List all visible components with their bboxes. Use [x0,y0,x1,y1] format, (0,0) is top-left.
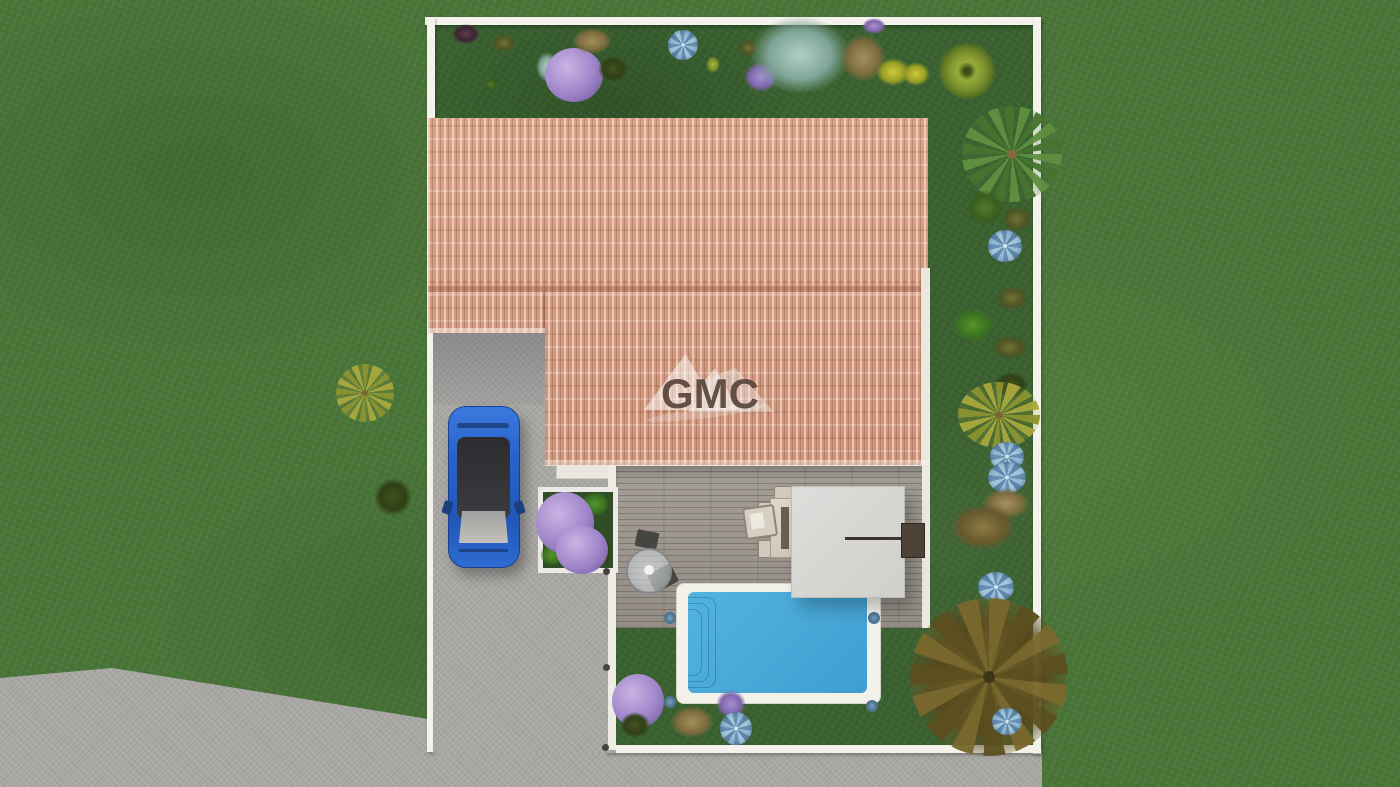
garden-light [664,696,676,708]
pool-spot-light [664,612,676,624]
agave-plant [720,712,752,745]
lilac-shrub [545,48,603,102]
yellow-palm [336,364,394,422]
autumn-tree [910,598,1068,756]
glaucous-tree [750,16,850,94]
garden-bush [374,478,412,516]
driveway-shadow [433,333,545,405]
roof-gutter [921,268,928,465]
lounge-cushion [750,513,765,530]
pool-spot-light [868,612,880,624]
yellow-palm [958,382,1040,448]
palm-tree [962,106,1062,202]
garden-bush [598,56,628,82]
table-runner [781,507,789,549]
garden-bush [950,504,1016,550]
agave-plant [668,30,698,60]
garden-bush [1002,206,1032,232]
garden-bush [620,712,650,738]
main-eave [545,460,928,465]
swimming-pool [676,583,881,704]
garden-bush [484,78,498,91]
car-hood-line [459,549,508,552]
pool-steps [688,609,702,676]
purple-shrub [862,18,886,34]
garden-bush [966,190,1004,226]
pergola-beam [845,537,903,540]
round-tree [938,42,996,100]
garden-bush [492,34,516,52]
garden-bush [992,336,1028,359]
bistro-table [626,548,672,594]
blue-car [448,406,520,568]
pool-water [688,592,867,693]
street-pavement-strip [430,749,1042,787]
garden-bush [452,24,480,44]
wall-post [602,744,609,751]
roof-ridge [428,286,928,292]
gmc-watermark: GMC [640,350,780,430]
car-windshield [459,511,508,543]
garden-bush [952,308,994,342]
yellow-flower-bush [902,62,930,86]
fence-top [425,17,1041,25]
door-step [556,464,616,479]
garden-bush [996,286,1028,310]
agave-plant [992,708,1022,735]
garden-bush [572,28,612,54]
wall-post [603,664,610,671]
agave-plant [988,230,1022,262]
garden-light [866,700,878,712]
property-rendering: GMC [0,0,1400,787]
garage-eave [428,328,545,333]
garden-bush [706,56,720,73]
garden-bush [670,706,714,738]
car-roof-glass [457,437,510,519]
table-setting [644,565,654,575]
pergola [791,486,905,598]
roof-seam [543,292,545,333]
wisteria-shrub [556,526,608,574]
lounge-chair [742,504,778,540]
outdoor-kitchen [901,523,925,558]
car-rear-band [457,423,509,428]
watermark-text: GMC [648,370,772,418]
wall-post [603,568,610,575]
